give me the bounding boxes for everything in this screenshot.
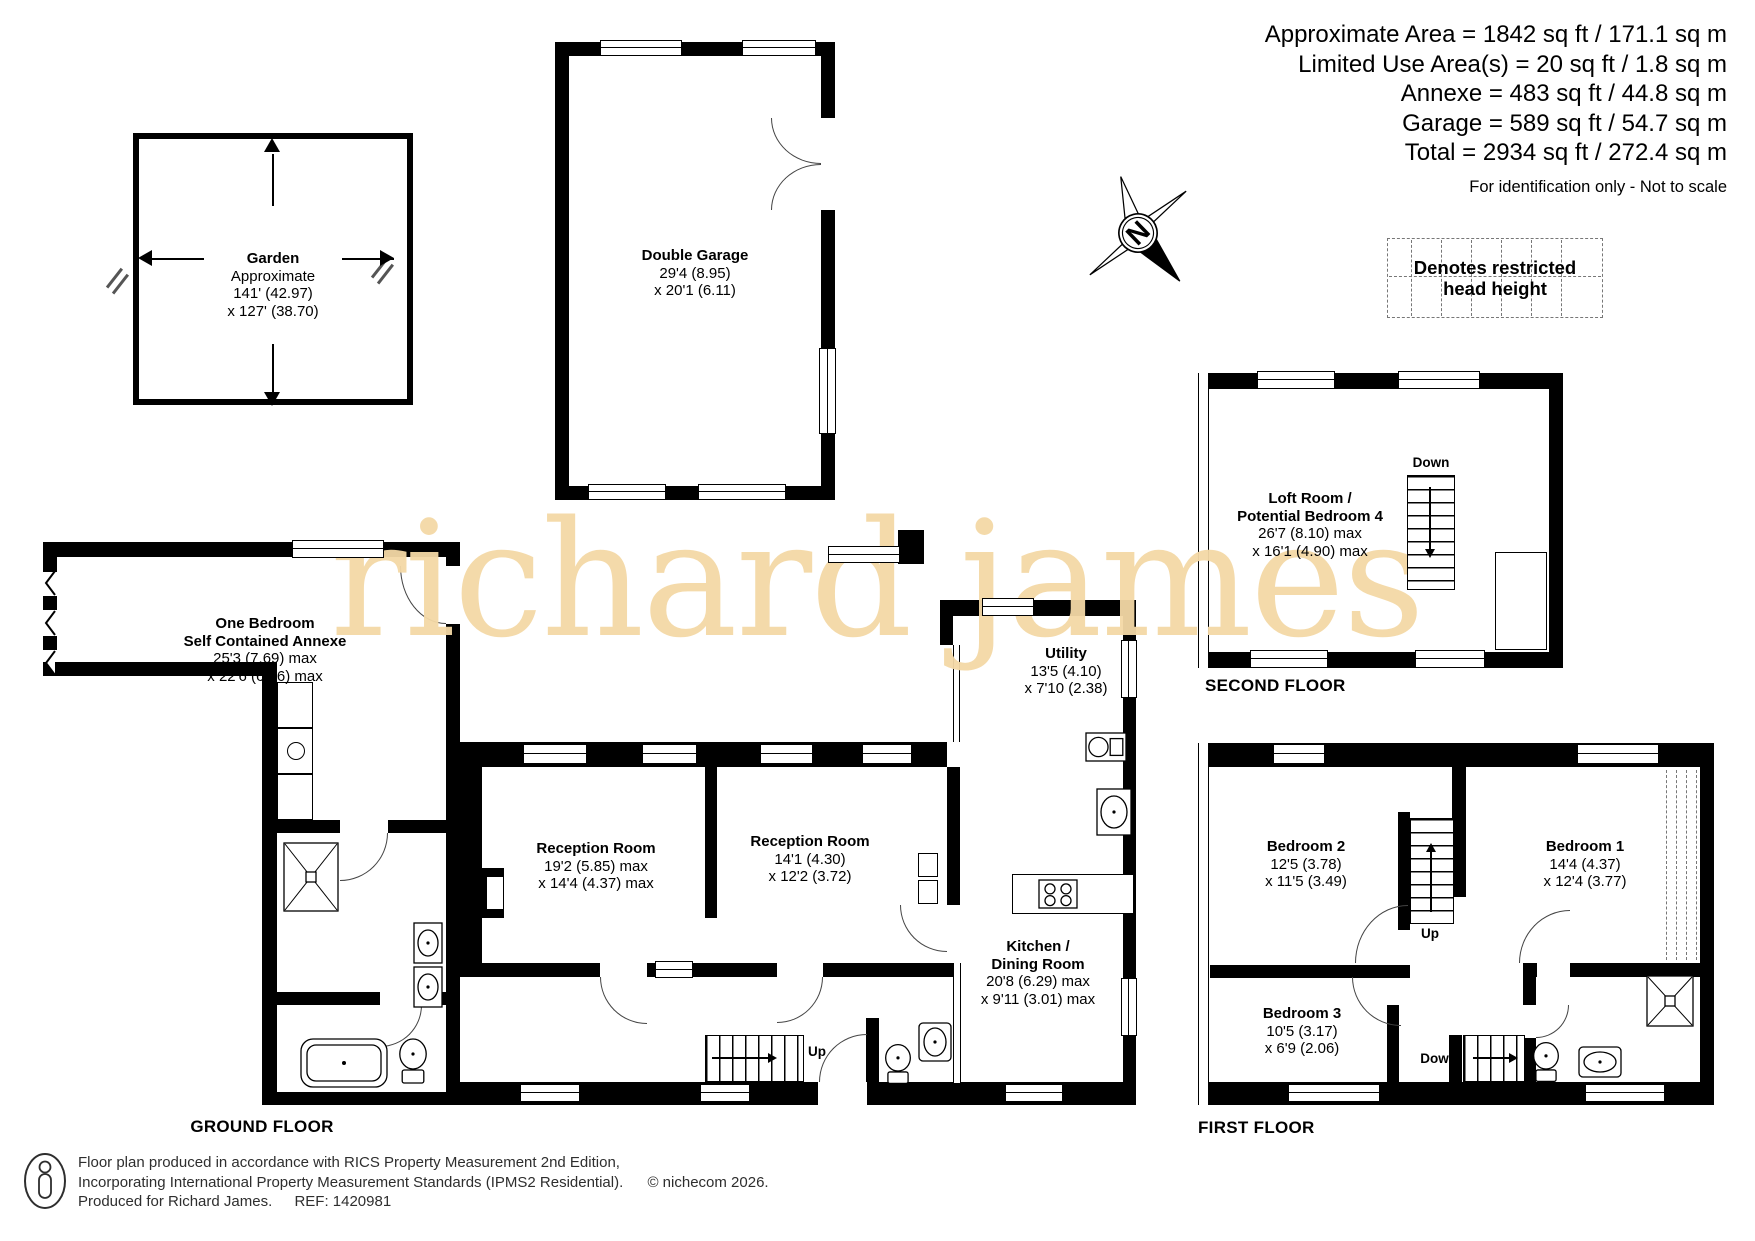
room-name: One Bedroom [184, 615, 347, 633]
window [520, 1084, 580, 1102]
floor-plan-page: richard james Approximate Area = 1842 sq… [0, 0, 1755, 1241]
room-label-garage: Double Garage 29'4 (8.95) x 20'1 (6.11) [642, 247, 749, 300]
wall-segment [460, 1082, 818, 1105]
basin-icon [918, 1022, 952, 1062]
footer-produced-for: Produced for Richard James. [78, 1193, 272, 1210]
room-label-bedroom1: Bedroom 1 14'4 (4.37) x 12'4 (3.77) [1544, 838, 1627, 891]
wall-segment [555, 42, 569, 500]
room-dims: x 16'1 (4.90) max [1237, 543, 1383, 561]
person-icon [23, 1152, 67, 1215]
room-dims: x 20'1 (6.11) [642, 282, 749, 300]
window [819, 348, 836, 434]
room-label-reception1: Reception Room 19'2 (5.85) max x 14'4 (4… [536, 840, 655, 893]
door-arc [771, 164, 821, 210]
room-dims: x 12'4 (3.77) [1544, 873, 1627, 891]
wall-segment [446, 624, 460, 1105]
shower-icon [1646, 975, 1694, 1027]
door-arc [1536, 1005, 1569, 1038]
wall-segment [277, 820, 340, 833]
door-arc [1519, 910, 1570, 963]
window [292, 540, 384, 558]
footer-copyright: © nichecom 2026. [647, 1174, 768, 1191]
stairs-down-label: Down [1395, 1051, 1457, 1066]
window [523, 744, 587, 764]
basin-icon [1578, 1046, 1622, 1078]
cabinet-box [486, 876, 504, 910]
bay-window-icon [43, 650, 57, 676]
restricted-head-height-line [1666, 770, 1667, 960]
cabinet-box [918, 880, 938, 904]
room-name: Utility [1025, 645, 1108, 663]
room-dims: 25'3 (7.69) max [184, 650, 347, 668]
stairs-up-label: Up [1421, 926, 1439, 941]
stairs-down-label: Down [1413, 455, 1450, 470]
sink-icon [413, 966, 443, 1008]
room-name: Kitchen / [981, 938, 1095, 956]
toilet-icon [398, 1036, 428, 1086]
scale-disclaimer: For identification only - Not to scale [1265, 177, 1727, 197]
footer-line: Floor plan produced in accordance with R… [78, 1153, 769, 1173]
window [642, 744, 697, 764]
window [1250, 650, 1328, 668]
door-arc [771, 118, 821, 164]
room-dims: 10'5 (3.17) [1263, 1023, 1341, 1041]
window [1273, 744, 1325, 764]
floor-title-second: SECOND FLOOR [1205, 676, 1346, 696]
summary-line: Limited Use Area(s) = 20 sq ft / 1.8 sq … [1265, 50, 1727, 80]
restricted-head-height-legend: Denotes restricted head height [1387, 238, 1603, 318]
wall-segment [693, 963, 777, 977]
room-name: Bedroom 3 [1263, 1005, 1341, 1023]
restricted-head-height-line [1686, 770, 1687, 960]
room-label-garden: Garden Approximate 141' (42.97) x 127' (… [227, 250, 318, 320]
room-dims: 14'1 (4.30) [750, 851, 869, 869]
direction-line [272, 344, 274, 396]
room-name: Self Contained Annexe [184, 633, 347, 651]
thin-wall [1198, 743, 1209, 1105]
bay-window-icon [43, 570, 57, 596]
window [1121, 640, 1137, 698]
wall-segment [43, 542, 57, 572]
window [828, 546, 900, 563]
cabinet-box [918, 853, 938, 877]
arrow-head-icon [380, 250, 394, 266]
appliance-icon [1085, 732, 1127, 762]
stairs-up-label: Up [808, 1044, 826, 1059]
room-name: Garden [227, 250, 318, 268]
arrow-head-icon [264, 392, 280, 406]
room-dims: x 6'9 (2.06) [1263, 1040, 1341, 1058]
wall-segment [1700, 743, 1714, 1105]
footer-text: Floor plan produced in accordance with R… [78, 1153, 769, 1212]
sink-circle [287, 742, 305, 760]
window [600, 40, 682, 56]
wall-segment [388, 820, 446, 833]
wall-segment [823, 963, 953, 977]
summary-line: Garage = 589 sq ft / 54.7 sq m [1265, 109, 1727, 139]
door-arc [1352, 977, 1401, 1026]
wall-segment [1523, 963, 1537, 977]
room-dims: 29'4 (8.95) [642, 265, 749, 283]
window [655, 961, 693, 978]
wall-segment [866, 1018, 879, 1082]
wall-segment [43, 636, 57, 650]
room-dims: x 9'11 (3.01) max [981, 991, 1095, 1009]
window [862, 744, 912, 764]
arrow-head-icon [1426, 843, 1436, 852]
arrow-head-icon [1509, 1053, 1518, 1063]
room-dims: 26'7 (8.10) max [1237, 525, 1383, 543]
window [1005, 1084, 1063, 1102]
wall-segment [1549, 373, 1563, 668]
bay-window-icon [43, 610, 57, 636]
room-dims: x 11'5 (3.49) [1265, 873, 1347, 891]
room-label-bedroom3: Bedroom 3 10'5 (3.17) x 6'9 (2.06) [1263, 1005, 1341, 1058]
room-label-reception2: Reception Room 14'1 (4.30) x 12'2 (3.72) [750, 833, 869, 886]
summary-line: Approximate Area = 1842 sq ft / 171.1 sq… [1265, 20, 1727, 50]
restricted-head-height-line [1696, 770, 1697, 960]
room-dims: x 12'2 (3.72) [750, 868, 869, 886]
window [698, 484, 786, 500]
window [1257, 371, 1335, 389]
wall-segment [1198, 373, 1563, 389]
room-dims: 14'4 (4.37) [1544, 856, 1627, 874]
room-name: Loft Room / [1237, 490, 1383, 508]
arrow-head-icon [264, 138, 280, 152]
footer-line: Produced for Richard James. REF: 1420981 [78, 1192, 769, 1212]
room-label-kitchen: Kitchen / Dining Room 20'8 (6.29) max x … [981, 938, 1095, 1008]
window [760, 744, 813, 764]
window [1288, 1084, 1380, 1102]
footer-ref: REF: 1420981 [294, 1193, 391, 1210]
door-arc [777, 977, 823, 1023]
compass-icon: N [1076, 170, 1200, 301]
room-name: Reception Room [536, 840, 655, 858]
wall-segment [460, 767, 482, 963]
wall-segment [1523, 977, 1536, 1005]
staircase [1410, 818, 1454, 924]
wall-segment [43, 596, 57, 610]
window [1577, 744, 1659, 764]
room-label-utility: Utility 13'5 (4.10) x 7'10 (2.38) [1025, 645, 1108, 698]
room-name: Reception Room [750, 833, 869, 851]
summary-line: Total = 2934 sq ft / 272.4 sq m [1265, 138, 1727, 168]
cabinet-box [1495, 552, 1547, 650]
room-label-annexe: One Bedroom Self Contained Annexe 25'3 (… [184, 615, 347, 685]
window [700, 1084, 750, 1102]
thin-wall [953, 963, 961, 1083]
room-dims: x 7'10 (2.38) [1025, 680, 1108, 698]
window [742, 40, 816, 56]
room-name: Dining Room [981, 956, 1095, 974]
window [1121, 978, 1137, 1036]
bathtub-icon [300, 1038, 388, 1088]
footer-line: Incorporating International Property Mea… [78, 1173, 769, 1193]
room-label-loft: Loft Room / Potential Bedroom 4 26'7 (8.… [1237, 490, 1383, 560]
legend-text: Denotes restricted head height [1400, 257, 1590, 299]
area-summary: Approximate Area = 1842 sq ft / 171.1 sq… [1265, 20, 1727, 197]
footer-standards: Incorporating International Property Mea… [78, 1174, 623, 1191]
room-dims: 13'5 (4.10) [1025, 663, 1108, 681]
door-arc [900, 905, 947, 952]
cabinet-box [277, 682, 313, 728]
room-name: Double Garage [642, 247, 749, 265]
room-name: Bedroom 1 [1544, 838, 1627, 856]
window [588, 484, 666, 500]
arrow-head-icon [768, 1053, 777, 1063]
wall-segment [262, 1092, 460, 1105]
door-arc [340, 833, 388, 881]
toilet-icon [1532, 1040, 1560, 1084]
arrow-head-icon [1425, 549, 1435, 558]
door-opening [821, 118, 835, 210]
direction-line [1473, 1057, 1511, 1059]
window [1398, 371, 1480, 389]
floor-plan-canvas: richard james Approximate Area = 1842 sq… [0, 0, 1755, 1241]
door-arc [819, 1034, 867, 1082]
wall-segment [460, 963, 600, 977]
door-arc [1355, 905, 1408, 963]
staircase [1407, 475, 1455, 590]
wall-segment [262, 662, 277, 1105]
room-label-bedroom2: Bedroom 2 12'5 (3.78) x 11'5 (3.49) [1265, 838, 1347, 891]
window [982, 598, 1034, 616]
window [1585, 1084, 1665, 1102]
direction-line [272, 154, 274, 206]
sink-icon [413, 922, 443, 964]
room-dims: 12'5 (3.78) [1265, 856, 1347, 874]
direction-line [1430, 850, 1432, 912]
room-dims: x 14'4 (4.37) max [536, 875, 655, 893]
wall-segment [705, 767, 717, 918]
toilet-icon [884, 1042, 912, 1086]
wall-segment [647, 963, 655, 977]
room-dims: 19'2 (5.85) max [536, 858, 655, 876]
floor-title-ground: GROUND FLOOR [190, 1117, 333, 1137]
floor-title-first: FIRST FLOOR [1198, 1118, 1315, 1138]
direction-line [1429, 487, 1431, 551]
shower-icon [283, 842, 339, 912]
door-arc [600, 977, 647, 1024]
arrow-head-icon [138, 250, 152, 266]
room-name: Potential Bedroom 4 [1237, 508, 1383, 526]
sink-icon [1096, 788, 1132, 836]
window [1415, 650, 1485, 668]
hob-icon [1038, 879, 1078, 909]
wall-segment [1452, 767, 1466, 897]
room-dims: 141' (42.97) [227, 285, 318, 303]
direction-line [152, 258, 204, 260]
wall-segment [277, 992, 380, 1005]
wall-segment [947, 767, 960, 905]
room-dims: x 22'6 (6.86) max [184, 668, 347, 686]
cabinet-box [277, 774, 313, 820]
summary-line: Annexe = 483 sq ft / 44.8 sq m [1265, 79, 1727, 109]
room-name: Bedroom 2 [1265, 838, 1347, 856]
room-note: Approximate [227, 268, 318, 286]
direction-line [712, 1057, 770, 1059]
room-dims: 20'8 (6.29) max [981, 973, 1095, 991]
room-dims: x 127' (38.70) [227, 303, 318, 321]
restricted-head-height-line [1676, 770, 1677, 960]
